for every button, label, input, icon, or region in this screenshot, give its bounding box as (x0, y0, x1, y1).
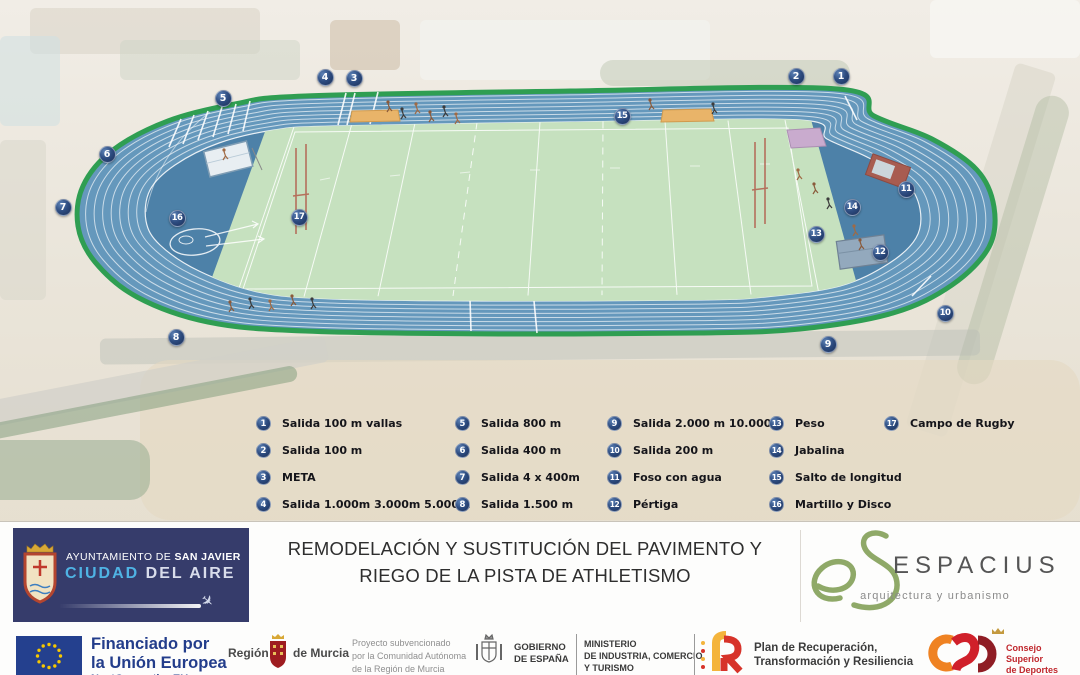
legend-label: Campo de Rugby (910, 417, 1015, 430)
track-marker-6: 6 (99, 146, 116, 163)
legend-number-badge: 14 (769, 443, 784, 458)
legend-label: Salida 100 m vallas (282, 417, 402, 430)
legend-item-4: 4Salida 1.000m 3.000m 5.000m (256, 496, 470, 513)
track-marker-3: 3 (346, 70, 363, 87)
legend-number-badge: 6 (455, 443, 470, 458)
legend-item-2: 2Salida 100 m (256, 442, 362, 459)
legend-item-10: 10Salida 200 m (607, 442, 713, 459)
legend-item-17: 17Campo de Rugby (884, 415, 1015, 432)
prtr-label: Plan de Recuperación, Transformación y R… (754, 641, 913, 669)
legend-number-badge: 12 (607, 497, 622, 512)
legend-number-badge: 15 (769, 470, 784, 485)
legend-label: Foso con agua (633, 471, 722, 484)
espacius-tagline: arquitectura y urbanismo (845, 590, 1025, 602)
legend-label: Pértiga (633, 498, 678, 511)
legend-label: Jabalina (795, 444, 845, 457)
track-marker-4: 4 (317, 69, 334, 86)
legend-number-badge: 16 (769, 497, 784, 512)
legend-item-6: 6Salida 400 m (455, 442, 561, 459)
legend-number-badge: 9 (607, 416, 622, 431)
spain-coat-of-arms-icon (468, 632, 510, 674)
track-marker-14: 14 (844, 199, 861, 216)
track-marker-11: 11 (898, 181, 915, 198)
divider (576, 634, 577, 675)
track-marker-1: 1 (833, 68, 850, 85)
long-jump-pit-left (350, 110, 400, 122)
legend-item-5: 5Salida 800 m (455, 415, 561, 432)
csd-label: Consejo Superior de Deportes (1006, 643, 1058, 675)
subsidy-note: Proyecto subvencionado por la Comunidad … (352, 637, 466, 675)
san-javier-name: AYUNTAMIENTO DE SAN JAVIER (66, 551, 241, 563)
legend-label: META (282, 471, 316, 484)
shot-put-pad (787, 128, 826, 148)
espacius-name: ESPACIUS (893, 552, 1061, 580)
legend-item-3: 3META (256, 469, 316, 486)
legend-item-9: 9Salida 2.000 m 10.000m (607, 415, 783, 432)
legend-item-7: 7Salida 4 x 400m (455, 469, 580, 486)
legend-label: Salida 200 m (633, 444, 713, 457)
track-marker-12: 12 (872, 244, 889, 261)
eu-flag-icon (16, 636, 82, 675)
legend-label: Salida 400 m (481, 444, 561, 457)
contrail-graphic (59, 604, 201, 608)
track-marker-16: 16 (169, 210, 186, 227)
legend-label: Salida 2.000 m 10.000m (633, 417, 783, 430)
track-marker-2: 2 (788, 68, 805, 85)
san-javier-motto: CIUDAD DEL AIRE (65, 565, 235, 583)
ministerio-label: MINISTERIO DE INDUSTRIA, COMERCIO Y TURI… (584, 638, 703, 674)
legend-label: Martillo y Disco (795, 498, 891, 511)
legend-label: Salto de longitud (795, 471, 902, 484)
legend-number-badge: 5 (455, 416, 470, 431)
divider (694, 634, 695, 675)
san-javier-crest-icon (17, 538, 63, 616)
legend-item-8: 8Salida 1.500 m (455, 496, 573, 513)
murcia-crest-icon (266, 632, 290, 672)
legend-label: Salida 1.500 m (481, 498, 573, 511)
legend-number-badge: 3 (256, 470, 271, 485)
legend-item-1: 1Salida 100 m vallas (256, 415, 402, 432)
legend-number-badge: 11 (607, 470, 622, 485)
legend-number-badge: 7 (455, 470, 470, 485)
legend-label: Salida 4 x 400m (481, 471, 580, 484)
footer-band: AYUNTAMIENTO DE SAN JAVIER CIUDAD DEL AI… (0, 521, 1080, 629)
airplane-icon: ✈ (197, 590, 218, 612)
legend-number-badge: 13 (769, 416, 784, 431)
legend-number-badge: 17 (884, 416, 899, 431)
track-marker-9: 9 (820, 336, 837, 353)
project-poster: 1234567891011121314151617 1Salida 100 m … (0, 0, 1080, 675)
legend-item-12: 12Pértiga (607, 496, 678, 513)
espacius-logo-icon (798, 530, 908, 620)
legend-item-15: 15Salto de longitud (769, 469, 902, 486)
legend-label: Peso (795, 417, 825, 430)
track-marker-5: 5 (215, 90, 232, 107)
legend-number-badge: 10 (607, 443, 622, 458)
gobierno-espana-label: GOBIERNO DE ESPAÑA (514, 642, 569, 666)
legend-number-badge: 1 (256, 416, 271, 431)
murcia-label-left: Región (228, 646, 269, 660)
track-marker-13: 13 (808, 226, 825, 243)
legend-label: Salida 100 m (282, 444, 362, 457)
murcia-label-right: de Murcia (293, 646, 349, 660)
project-title: REMODELACIÓN Y SUSTITUCIÓN DEL PAVIMENTO… (255, 535, 795, 589)
legend-label: Salida 800 m (481, 417, 561, 430)
legend-item-14: 14Jabalina (769, 442, 845, 459)
long-jump-pit-right (661, 109, 714, 122)
legend-number-badge: 4 (256, 497, 271, 512)
track-marker-8: 8 (168, 329, 185, 346)
track-marker-17: 17 (291, 209, 308, 226)
track-marker-15: 15 (614, 108, 631, 125)
eu-funding-line1: Financiado por (91, 635, 209, 654)
san-javier-logo: AYUNTAMIENTO DE SAN JAVIER CIUDAD DEL AI… (13, 528, 249, 622)
track-marker-7: 7 (55, 199, 72, 216)
funding-bar: Financiado por la Unión Europea NextGene… (0, 628, 1080, 675)
csd-logo-icon (920, 628, 1006, 675)
legend-item-11: 11Foso con agua (607, 469, 722, 486)
prtr-logo-icon (698, 629, 754, 675)
legend-item-13: 13Peso (769, 415, 825, 432)
legend-label: Salida 1.000m 3.000m 5.000m (282, 498, 470, 511)
eu-funding-line2: la Unión Europea (91, 654, 227, 673)
track-marker-10: 10 (937, 305, 954, 322)
legend-number-badge: 8 (455, 497, 470, 512)
legend-number-badge: 2 (256, 443, 271, 458)
legend-item-16: 16Martillo y Disco (769, 496, 891, 513)
